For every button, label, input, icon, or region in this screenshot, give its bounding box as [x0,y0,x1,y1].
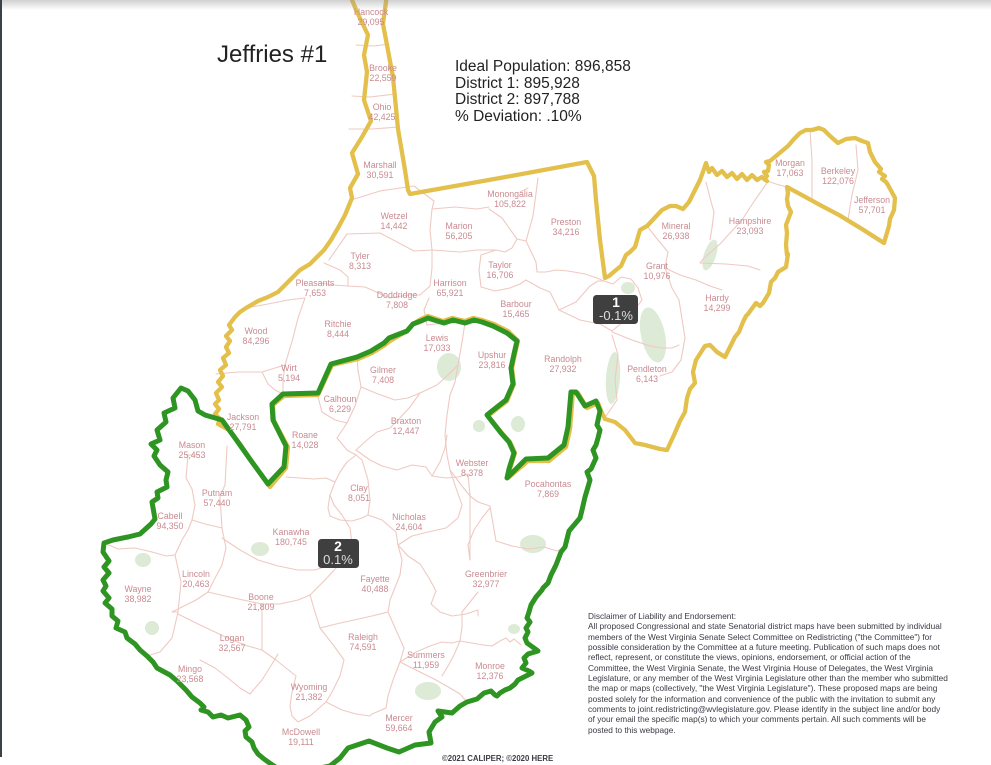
svg-text:Pleasants7,653: Pleasants7,653 [296,278,335,298]
svg-text:Lewis17,033: Lewis17,033 [424,333,451,353]
svg-text:Boone21,809: Boone21,809 [248,592,275,612]
svg-text:Roane14,028: Roane14,028 [292,430,319,450]
svg-text:Wyoming21,382: Wyoming21,382 [291,682,328,702]
svg-text:Fayette40,488: Fayette40,488 [360,574,389,594]
svg-text:Berkeley122,076: Berkeley122,076 [821,166,856,186]
svg-text:Marion56,205: Marion56,205 [446,221,473,241]
svg-text:Randolph27,932: Randolph27,932 [544,354,582,374]
svg-text:Preston34,216: Preston34,216 [551,217,581,237]
svg-text:Mineral26,938: Mineral26,938 [662,221,691,241]
svg-text:Clay8,051: Clay8,051 [348,483,370,503]
svg-text:Cabell94,350: Cabell94,350 [157,511,184,531]
svg-text:Lincoln20,463: Lincoln20,463 [182,569,210,589]
svg-text:Pendleton6,143: Pendleton6,143 [627,364,667,384]
svg-text:Putnam57,440: Putnam57,440 [202,488,232,508]
svg-text:Webster8,378: Webster8,378 [456,458,489,478]
svg-text:Mason25,453: Mason25,453 [179,440,206,460]
svg-text:Ohio42,425: Ohio42,425 [369,102,396,122]
svg-text:Braxton12,447: Braxton12,447 [391,416,421,436]
svg-text:Kanawha180,745: Kanawha180,745 [273,527,310,547]
svg-text:Mercer59,664: Mercer59,664 [385,713,412,733]
svg-text:Jefferson57,701: Jefferson57,701 [854,195,890,215]
svg-text:Summers11,959: Summers11,959 [407,650,445,670]
svg-text:Taylor16,706: Taylor16,706 [487,260,514,280]
svg-text:Morgan17,063: Morgan17,063 [775,158,805,178]
svg-text:Calhoun6,229: Calhoun6,229 [324,394,357,414]
svg-text:Pocahontas7,869: Pocahontas7,869 [525,479,572,499]
svg-text:0.1%: 0.1% [323,552,353,567]
svg-text:Marshall30,591: Marshall30,591 [363,160,396,180]
svg-text:McDowell19,111: McDowell19,111 [282,727,320,747]
svg-text:Gilmer7,408: Gilmer7,408 [370,365,396,385]
svg-text:Raleigh74,591: Raleigh74,591 [348,632,378,652]
svg-text:Ritchie8,444: Ritchie8,444 [325,319,352,339]
svg-text:-0.1%: -0.1% [599,308,633,323]
svg-text:Monroe12,376: Monroe12,376 [475,661,505,681]
svg-text:Mingo23,568: Mingo23,568 [177,664,204,684]
svg-text:Grant10,976: Grant10,976 [644,261,671,281]
svg-text:Jackson27,791: Jackson27,791 [227,412,259,432]
svg-text:Hampshire23,093: Hampshire23,093 [729,216,772,236]
svg-text:Nicholas24,604: Nicholas24,604 [392,512,426,532]
svg-text:Harrison65,921: Harrison65,921 [433,278,466,298]
svg-text:Brooke22,559: Brooke22,559 [369,63,397,83]
svg-text:Hardy14,299: Hardy14,299 [704,293,731,313]
svg-text:Barbour15,465: Barbour15,465 [500,299,531,319]
svg-text:Doddridge7,808: Doddridge7,808 [377,290,418,310]
svg-text:Monongalia105,822: Monongalia105,822 [487,189,533,209]
svg-text:Wood84,296: Wood84,296 [243,326,270,346]
svg-text:Logan32,567: Logan32,567 [219,633,246,653]
svg-text:Upshur23,816: Upshur23,816 [478,350,506,370]
svg-text:Wetzel14,442: Wetzel14,442 [381,211,408,231]
svg-text:Wayne38,982: Wayne38,982 [124,584,151,604]
svg-text:Tyler8,313: Tyler8,313 [349,251,371,271]
svg-text:Greenbrier32,977: Greenbrier32,977 [465,569,507,589]
svg-text:Wirt5,194: Wirt5,194 [278,363,300,383]
